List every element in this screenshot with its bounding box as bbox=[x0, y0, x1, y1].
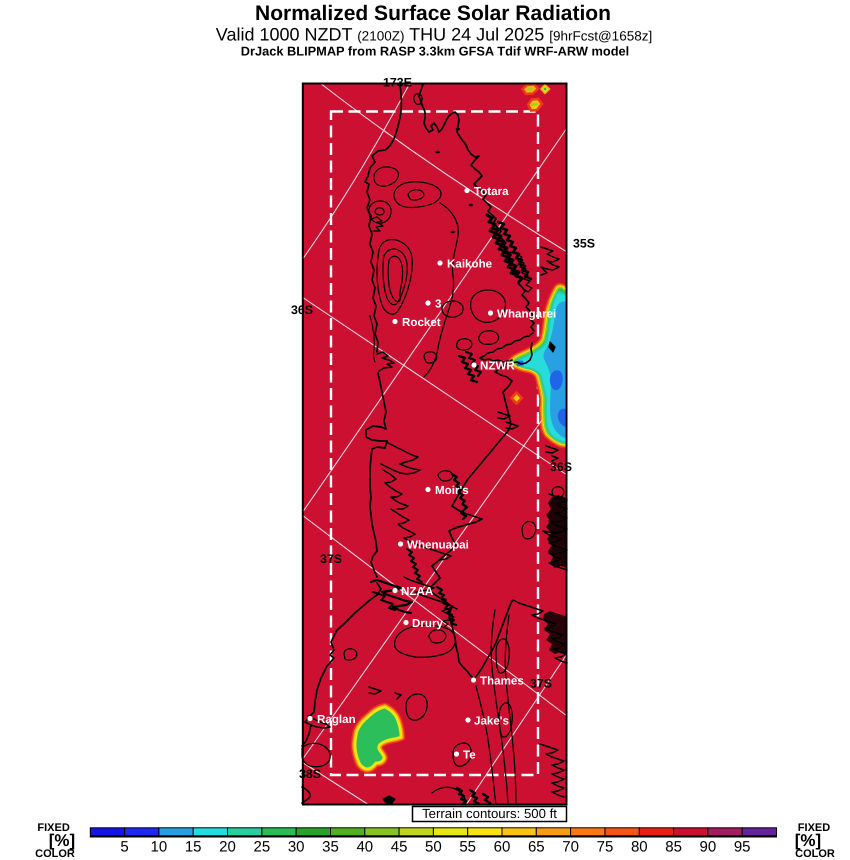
svg-text:Terrain contours: 500 ft: Terrain contours: 500 ft bbox=[422, 806, 557, 821]
svg-text:36S: 36S bbox=[550, 460, 572, 474]
svg-text:45: 45 bbox=[391, 839, 408, 856]
svg-text:60: 60 bbox=[494, 839, 511, 856]
svg-text:Totara: Totara bbox=[474, 185, 509, 198]
svg-text:Drury: Drury bbox=[412, 617, 443, 630]
svg-text:Moir's: Moir's bbox=[435, 484, 469, 497]
svg-text:Jake's: Jake's bbox=[474, 715, 509, 728]
svg-text:90: 90 bbox=[700, 839, 717, 856]
svg-text:COLOR: COLOR bbox=[795, 848, 835, 860]
svg-text:65: 65 bbox=[528, 839, 545, 856]
svg-text:35S: 35S bbox=[573, 237, 595, 251]
svg-text:Rocket: Rocket bbox=[402, 316, 441, 329]
svg-text:55: 55 bbox=[459, 839, 476, 856]
svg-text:NZAA: NZAA bbox=[401, 585, 434, 598]
svg-text:Valid 1000 NZDT (2100Z) THU 24: Valid 1000 NZDT (2100Z) THU 24 Jul 2025 … bbox=[216, 25, 652, 45]
svg-text:Te: Te bbox=[463, 749, 476, 762]
svg-text:80: 80 bbox=[631, 839, 648, 856]
svg-text:50: 50 bbox=[425, 839, 442, 856]
svg-text:NZWR: NZWR bbox=[480, 360, 515, 373]
svg-text:Thames: Thames bbox=[480, 675, 524, 688]
svg-text:173E: 173E bbox=[383, 76, 412, 90]
svg-text:DrJack BLIPMAP from RASP 3.3km: DrJack BLIPMAP from RASP 3.3km GFSA Tdif… bbox=[241, 44, 629, 59]
svg-text:40: 40 bbox=[356, 839, 373, 856]
svg-text:70: 70 bbox=[562, 839, 579, 856]
svg-text:85: 85 bbox=[665, 839, 682, 856]
svg-text:5: 5 bbox=[120, 839, 128, 856]
svg-text:Normalized Surface Solar Radia: Normalized Surface Solar Radiation bbox=[255, 2, 611, 25]
svg-text:Whangarei: Whangarei bbox=[497, 308, 556, 321]
svg-text:10: 10 bbox=[151, 839, 168, 856]
svg-text:37S: 37S bbox=[320, 552, 342, 566]
svg-text:Kaikohe: Kaikohe bbox=[447, 258, 493, 271]
svg-text:36S: 36S bbox=[291, 303, 313, 317]
svg-text:95: 95 bbox=[734, 839, 751, 856]
svg-text:COLOR: COLOR bbox=[35, 848, 75, 860]
svg-text:38S: 38S bbox=[299, 767, 321, 781]
svg-text:37S: 37S bbox=[530, 677, 552, 691]
svg-text:20: 20 bbox=[219, 839, 236, 856]
svg-text:25: 25 bbox=[254, 839, 271, 856]
svg-text:15: 15 bbox=[185, 839, 202, 856]
svg-text:30: 30 bbox=[288, 839, 305, 856]
svg-text:3: 3 bbox=[435, 298, 442, 311]
svg-text:35: 35 bbox=[322, 839, 339, 856]
svg-text:Raglan: Raglan bbox=[317, 713, 356, 726]
svg-text:Whenuapai: Whenuapai bbox=[407, 539, 469, 552]
svg-text:75: 75 bbox=[597, 839, 614, 856]
